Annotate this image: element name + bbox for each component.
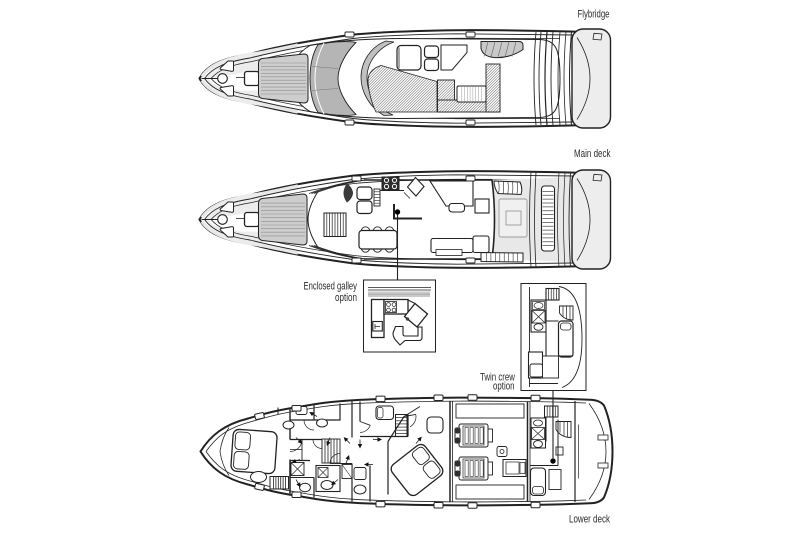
svg-text:option: option bbox=[335, 292, 357, 304]
svg-text:option: option bbox=[493, 381, 515, 393]
svg-text:Flybridge: Flybridge bbox=[578, 9, 610, 21]
svg-text:Lower deck: Lower deck bbox=[569, 514, 610, 526]
svg-text:Main deck: Main deck bbox=[574, 148, 611, 160]
svg-text:Enclosed galley: Enclosed galley bbox=[304, 281, 358, 293]
